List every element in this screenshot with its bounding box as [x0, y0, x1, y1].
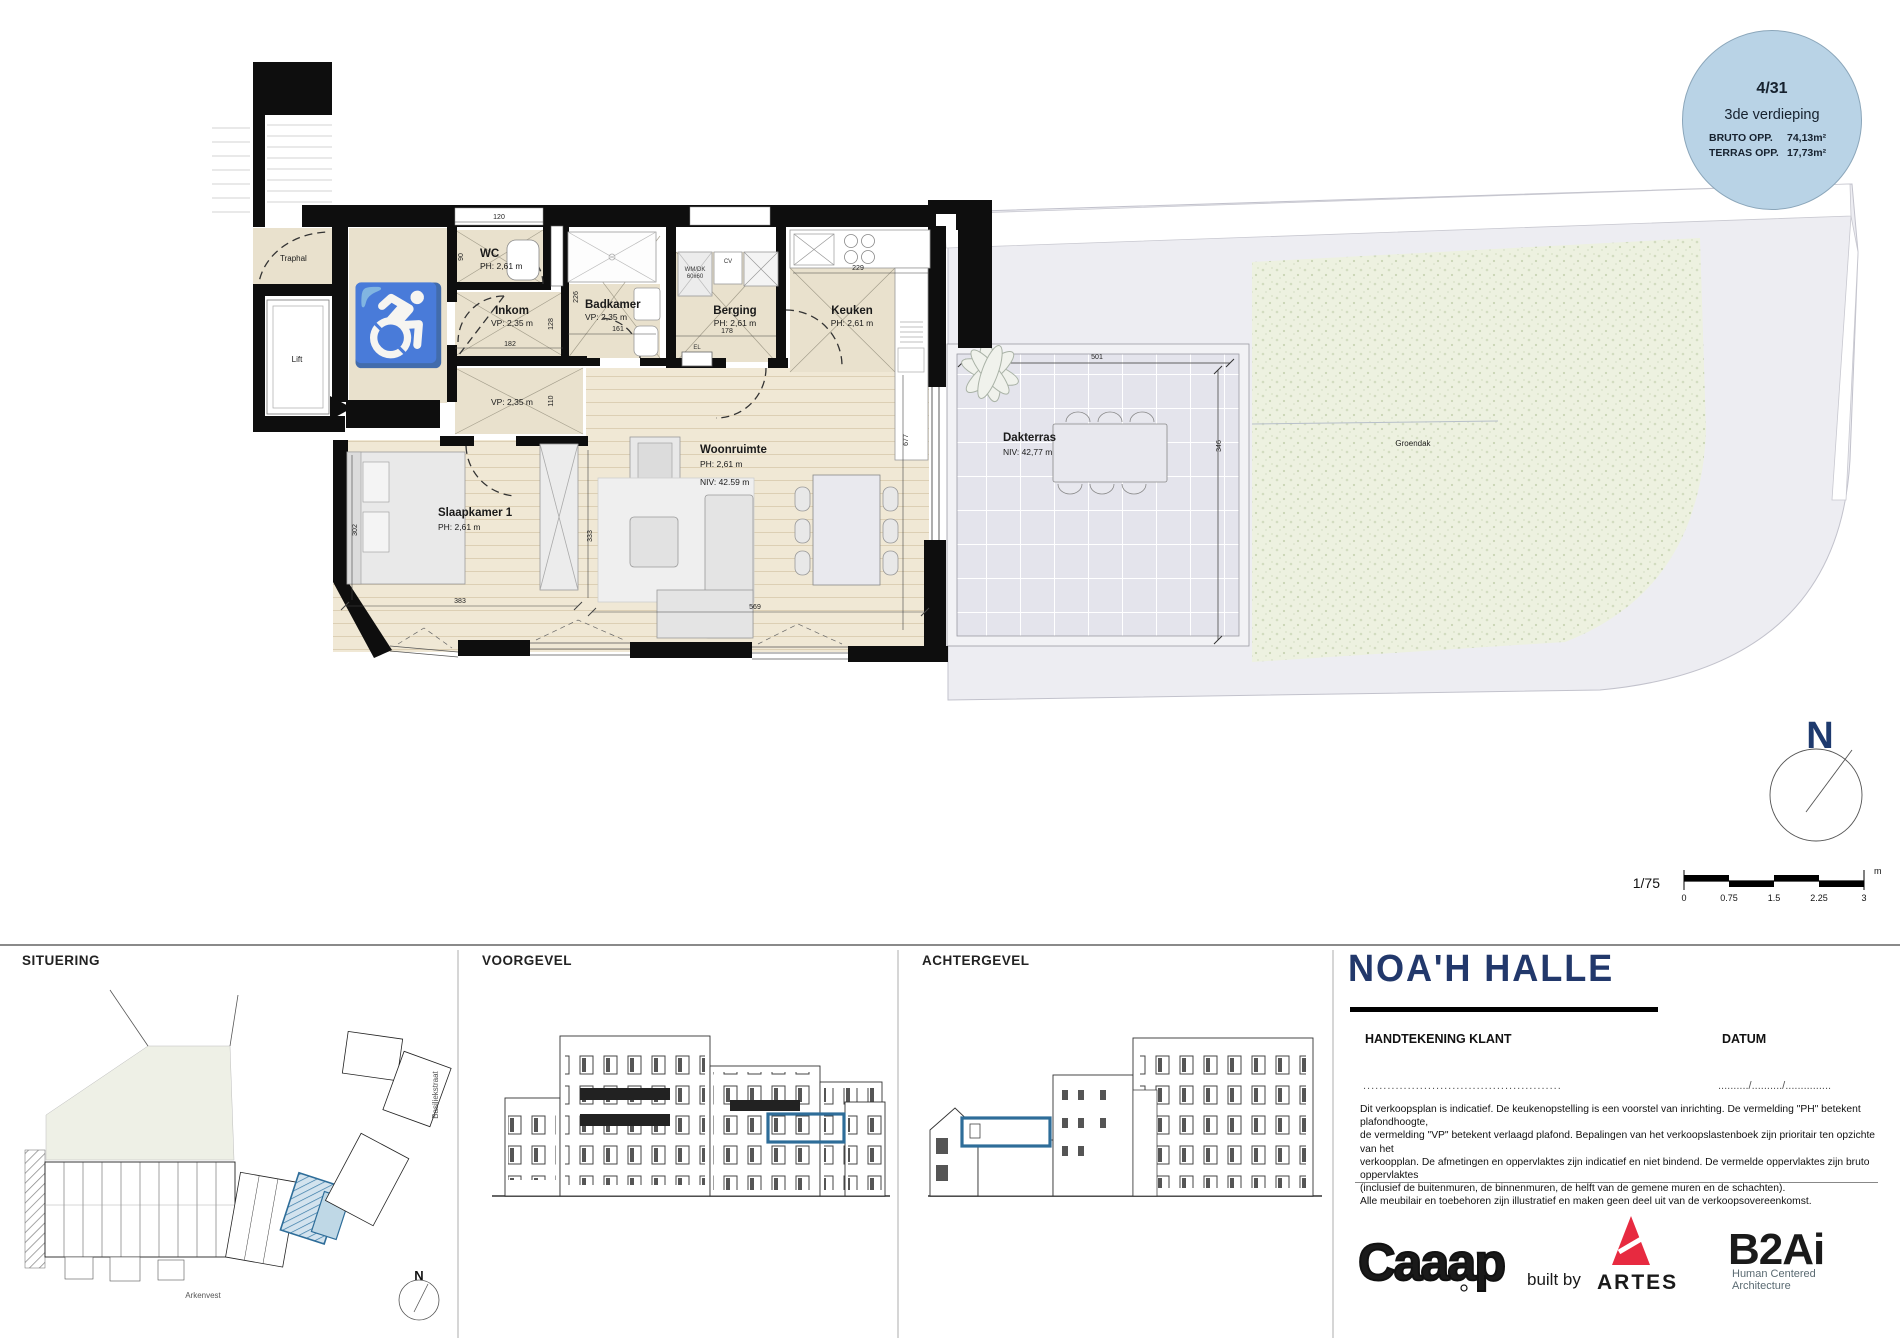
- bruto-value: 74,13m²: [1787, 131, 1835, 146]
- svg-text:229: 229: [852, 265, 864, 272]
- room-label-keuken: Keuken: [831, 305, 873, 317]
- scale-bar: 1/75 0 0.75 1.5 2.25 3 m: [1633, 866, 1882, 903]
- site-plan: N Arkenvest Basiliekstraat: [25, 990, 451, 1320]
- signature-line: ........................................…: [1363, 1080, 1562, 1092]
- svg-text:501: 501: [1091, 354, 1103, 361]
- room-label-badkamer: Badkamer: [585, 299, 641, 311]
- section-title-situering: SITUERING: [22, 953, 100, 968]
- north-arrow: N: [1770, 715, 1862, 841]
- b2ai-tagline: Human Centered Architecture: [1732, 1268, 1816, 1292]
- badge-row-bruto: BRUTO OPP. 74,13m²: [1709, 131, 1835, 146]
- room-label-slaapkamer: Slaapkamer 1: [438, 507, 513, 519]
- svg-text:569: 569: [749, 604, 761, 611]
- disclaimer-text: Dit verkoopsplan is indicatief. De keuke…: [1360, 1103, 1880, 1209]
- apartment-floors: ♿: [253, 228, 930, 652]
- street-label-arkenvest: Arkenvest: [185, 1291, 221, 1300]
- north-letter: N: [1806, 715, 1833, 757]
- svg-text:677: 677: [903, 434, 910, 446]
- wheelchair-icon: ♿: [349, 281, 446, 370]
- svg-text:PH: 2,61 m: PH: 2,61 m: [480, 261, 523, 271]
- title-underline: [1350, 1007, 1658, 1012]
- svg-text:346: 346: [1216, 440, 1223, 452]
- room-label-wc: WC: [480, 248, 499, 260]
- room-label-dakterras: Dakterras: [1003, 432, 1056, 444]
- svg-text:178: 178: [721, 328, 733, 335]
- rear-elevation: [928, 1038, 1322, 1196]
- svg-text:VP: 2,35 m: VP: 2,35 m: [491, 397, 533, 407]
- svg-text:226: 226: [573, 291, 580, 303]
- badge-row-terras: TERRAS OPP. 17,73m²: [1709, 146, 1835, 161]
- svg-text:PH: 2,61 m: PH: 2,61 m: [438, 522, 481, 532]
- svg-text:302: 302: [352, 524, 359, 536]
- signature-label: HANDTEKENING KLANT: [1365, 1032, 1512, 1046]
- svg-text:NIV: 42.59 m: NIV: 42.59 m: [700, 477, 749, 487]
- b2ai-logo: B2Ai: [1728, 1225, 1824, 1274]
- svg-text:2.25: 2.25: [1810, 893, 1828, 903]
- svg-text:VP: 2,35 m: VP: 2,35 m: [491, 318, 533, 328]
- section-title-voorgevel: VOORGEVEL: [482, 953, 572, 968]
- svg-text:60x60: 60x60: [687, 274, 704, 280]
- artes-logo-icon: [1612, 1216, 1650, 1265]
- svg-text:WM/DK: WM/DK: [685, 267, 706, 273]
- date-label: DATUM: [1722, 1032, 1766, 1046]
- terras-label: TERRAS OPP.: [1709, 146, 1787, 161]
- svg-text:m: m: [1874, 866, 1882, 876]
- unit-badge: 4/31 3de verdieping BRUTO OPP. 74,13m² T…: [1682, 30, 1862, 210]
- svg-text:VP: 2,35 m: VP: 2,35 m: [585, 312, 627, 322]
- unit-number: 4/31: [1756, 80, 1787, 98]
- svg-text:383: 383: [454, 598, 466, 605]
- built-by-label: built by: [1527, 1270, 1581, 1289]
- svg-text:333: 333: [587, 530, 594, 542]
- project-title: NOA'H HALLE: [1348, 948, 1614, 991]
- svg-text:0.75: 0.75: [1720, 893, 1738, 903]
- caaap-logo: Caaap: [1358, 1234, 1504, 1292]
- terrace-table: [1053, 412, 1167, 494]
- terras-value: 17,73m²: [1787, 146, 1835, 161]
- floorplan-sheet: ♿: [0, 0, 1900, 1343]
- svg-text:120: 120: [493, 214, 505, 221]
- svg-text:PH: 2,61 m: PH: 2,61 m: [714, 318, 757, 328]
- svg-text:PH: 2,61 m: PH: 2,61 m: [700, 459, 743, 469]
- room-label-traphal: Traphal: [280, 254, 307, 263]
- titleblock-separator: [1355, 1182, 1878, 1183]
- svg-text:PH: 2,61 m: PH: 2,61 m: [831, 318, 874, 328]
- roof-terrace: [947, 341, 1249, 646]
- front-elevation: [492, 1036, 890, 1196]
- site-north-letter: N: [414, 1268, 423, 1283]
- svg-text:0: 0: [1681, 893, 1686, 903]
- section-title-achtergevel: ACHTERGEVEL: [922, 953, 1030, 968]
- svg-text:110: 110: [548, 395, 555, 406]
- rear-elevation-highlight: [962, 1118, 1050, 1146]
- svg-text:90: 90: [458, 253, 465, 261]
- svg-text:182: 182: [504, 341, 516, 348]
- room-label-berging: Berging: [713, 305, 756, 317]
- svg-text:3: 3: [1861, 893, 1866, 903]
- date-line: ........../........../...............: [1718, 1080, 1831, 1092]
- street-label-basiliekstraat: Basiliekstraat: [431, 1070, 440, 1118]
- svg-text:128: 128: [548, 318, 555, 330]
- svg-text:161: 161: [612, 326, 624, 333]
- room-label-woonruimte: Woonruimte: [700, 444, 767, 456]
- bruto-label: BRUTO OPP.: [1709, 131, 1787, 146]
- svg-text:EL: EL: [693, 345, 701, 351]
- svg-text:CV: CV: [724, 259, 732, 265]
- artes-logo: ARTES: [1597, 1271, 1678, 1294]
- svg-text:NIV: 42,77 m: NIV: 42,77 m: [1003, 447, 1052, 457]
- room-label-lift: Lift: [292, 355, 303, 364]
- room-label-groendak: Groendak: [1395, 439, 1431, 448]
- svg-text:1/75: 1/75: [1633, 875, 1660, 891]
- room-label-inkom: Inkom: [495, 305, 529, 317]
- svg-text:1.5: 1.5: [1768, 893, 1781, 903]
- floor-label: 3de verdieping: [1724, 107, 1819, 123]
